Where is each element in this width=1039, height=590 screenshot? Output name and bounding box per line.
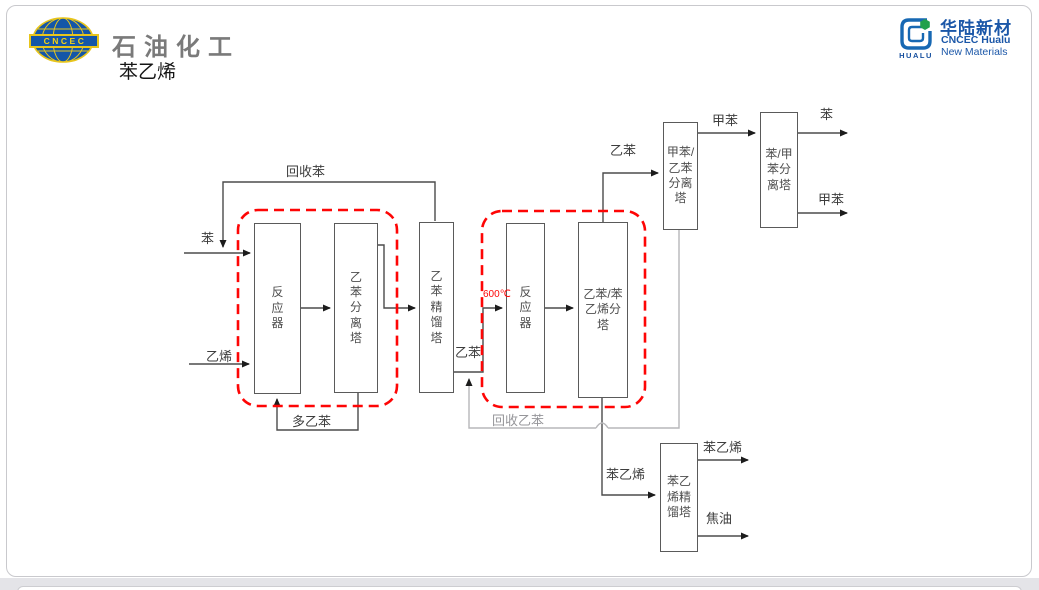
label-eb-mid: 乙苯 xyxy=(455,342,481,361)
hualu-name-en2: New Materials xyxy=(941,46,1008,58)
label-recycle-benzene: 回收苯 xyxy=(286,161,325,180)
label-ethylene-in: 乙烯 xyxy=(206,346,232,365)
tower-eb-sm-splitter-label: 乙苯/苯 乙烯分 塔 xyxy=(583,287,622,333)
label-benzene-out: 苯 xyxy=(820,104,833,123)
label-poly-eb: 多乙苯 xyxy=(292,411,331,430)
label-recycle-eb: 回收乙苯 xyxy=(492,410,544,429)
tower-eb-sm-splitter: 乙苯/苯 乙烯分 塔 xyxy=(578,222,628,398)
cncec-logo: CNCEC xyxy=(30,16,98,64)
tower-sm-distillation-label: 苯乙 烯精 馏塔 xyxy=(667,474,691,520)
tower-eb-separation: 乙 苯 分 离 塔 xyxy=(334,223,378,393)
tower-toluene-eb-separation-label: 甲苯/ 乙苯 分离 塔 xyxy=(667,145,694,206)
label-toluene-mid: 甲苯 xyxy=(712,110,738,129)
hualu-logo: HUALU 华陆新材 CNCEC Hualu New Materials xyxy=(893,13,1029,61)
tower-eb-distillation: 乙 苯 精 馏 塔 xyxy=(419,222,454,393)
tower-benzene-toluene-separation: 苯/甲 苯分 离塔 xyxy=(760,112,798,228)
tower-eb-distillation-label: 乙 苯 精 馏 塔 xyxy=(430,269,442,346)
label-tar-out: 焦油 xyxy=(706,508,732,527)
tower-reactor1-label: 反 应 器 xyxy=(271,285,283,331)
label-toluene-out: 甲苯 xyxy=(818,189,844,208)
tower-benzene-toluene-separation-label: 苯/甲 苯分 离塔 xyxy=(765,147,792,193)
tower-reactor1: 反 应 器 xyxy=(254,223,301,394)
hualu-mark-icon xyxy=(898,16,936,52)
label-benzene-in: 苯 xyxy=(201,228,214,247)
tower-reactor2-label: 反 应 器 xyxy=(519,285,531,331)
tower-eb-separation-label: 乙 苯 分 离 塔 xyxy=(350,270,362,347)
tower-toluene-eb-separation: 甲苯/ 乙苯 分离 塔 xyxy=(663,122,698,230)
label-temperature: 600℃ xyxy=(483,289,511,300)
hualu-mark-text: HUALU xyxy=(895,51,937,60)
label-sm-out: 苯乙烯 xyxy=(703,437,742,456)
label-sm-mid: 苯乙烯 xyxy=(606,464,645,483)
page-title: 苯乙烯 xyxy=(119,57,176,84)
hualu-name-en1: CNCEC Hualu xyxy=(941,34,1010,46)
tower-sm-distillation: 苯乙 烯精 馏塔 xyxy=(660,443,698,552)
cncec-badge: CNCEC xyxy=(29,34,99,48)
next-slide-edge xyxy=(17,586,1022,590)
tower-reactor2: 反 应 器 xyxy=(506,223,545,393)
label-eb-top: 乙苯 xyxy=(610,140,636,159)
slide-screen: CNCEC 石油化工 苯乙烯 HUALU 华陆新材 CNCEC Hualu Ne… xyxy=(0,0,1039,590)
